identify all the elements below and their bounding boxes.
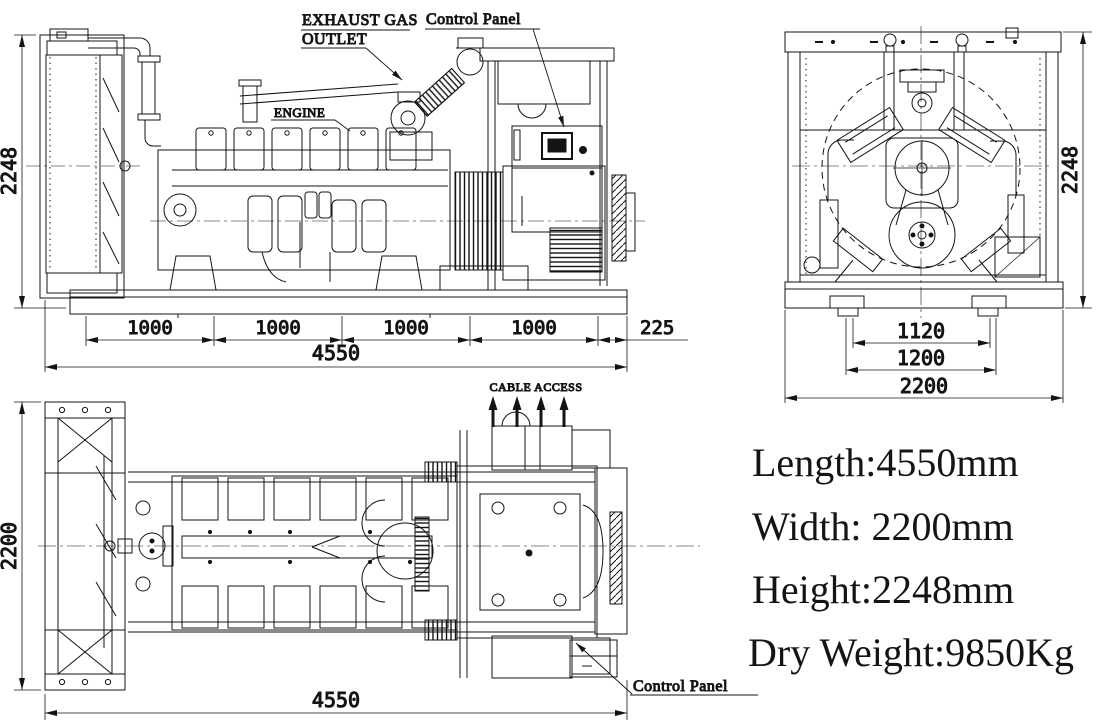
spec-length: Length:4550mm: [752, 440, 1019, 485]
genset-dimension-drawing: 2248 1000 1000 1000 1000 225 4550 EXHAUS…: [0, 0, 1099, 727]
dim-side-overhang: 225: [640, 317, 674, 339]
dim-front-width: 2200: [900, 374, 948, 398]
front-base: [785, 282, 1063, 316]
dim-plan-width: 2200: [0, 522, 21, 570]
plan-cable-arrows: [489, 396, 569, 427]
side-dimensions: [14, 35, 688, 372]
dim-side-bay-2: 1000: [255, 317, 301, 339]
side-base: [70, 290, 627, 318]
plan-engine: [128, 472, 595, 632]
spec-dry-weight: Dry Weight:9850Kg: [748, 630, 1074, 675]
label-cable-access: CABLE ACCESS: [489, 380, 582, 394]
plan-dimensions: [14, 402, 627, 720]
plan-alternator: [425, 412, 627, 678]
plan-view: CABLE ACCESS Control Panel 2200 4550: [0, 380, 758, 720]
side-turbo-exhaust: [390, 38, 486, 160]
dim-side-bay-3: 1000: [383, 317, 429, 339]
dim-side-height: 2248: [0, 147, 21, 195]
label-engine: ENGINE: [274, 105, 325, 120]
label-control-panel-plan: Control Panel: [633, 678, 728, 695]
dim-front-feet-inner: 1120: [897, 319, 945, 343]
dim-plan-total: 4550: [312, 688, 360, 712]
side-radiator: [40, 29, 130, 298]
dim-front-feet-outer: 1200: [897, 346, 945, 370]
front-engine: [820, 70, 1040, 277]
side-alternator: [440, 166, 635, 290]
spec-block: Length:4550mm Width: 2200mm Height:2248m…: [748, 440, 1074, 675]
technical-drawing-canvas: 2248 1000 1000 1000 1000 225 4550 EXHAUS…: [0, 0, 1099, 727]
dim-side-bay-1: 1000: [127, 317, 173, 339]
label-control-panel-top: Control Panel: [426, 11, 521, 28]
spec-width: Width: 2200mm: [752, 504, 1014, 549]
label-exhaust-gas-line2: OUTLET: [302, 31, 367, 48]
dim-side-bay-4: 1000: [511, 317, 557, 339]
front-view: 2248 1120 1200 2200: [785, 26, 1092, 403]
spec-height: Height:2248mm: [752, 567, 1014, 612]
dim-side-total: 4550: [312, 341, 360, 365]
side-view: 2248 1000 1000 1000 1000 225 4550 EXHAUS…: [0, 11, 688, 372]
label-exhaust-gas-line1: EXHAUST GAS: [302, 12, 418, 29]
dim-front-height: 2248: [1058, 146, 1082, 194]
